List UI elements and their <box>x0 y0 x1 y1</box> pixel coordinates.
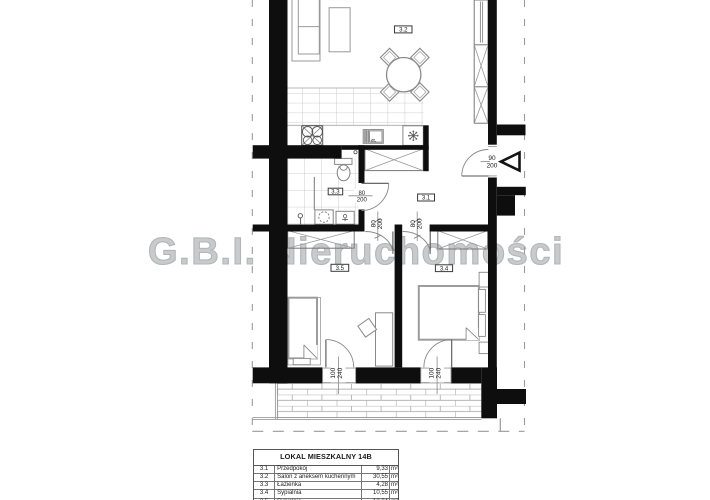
svg-text:3.5: 3.5 <box>336 266 345 272</box>
svg-text:3.2: 3.2 <box>399 28 408 34</box>
svg-text:90: 90 <box>488 155 496 162</box>
svg-text:200: 200 <box>377 218 384 229</box>
svg-text:200: 200 <box>357 197 368 203</box>
svg-text:80: 80 <box>358 191 365 197</box>
svg-text:200: 200 <box>417 218 424 229</box>
svg-text:100: 100 <box>429 367 436 378</box>
svg-text:3.4: 3.4 <box>440 266 449 272</box>
svg-text:100: 100 <box>330 367 337 378</box>
svg-text:240: 240 <box>337 367 344 378</box>
svg-text:3.1: 3.1 <box>422 196 431 202</box>
svg-text:240: 240 <box>436 367 443 378</box>
svg-text:200: 200 <box>487 162 498 169</box>
svg-text:3.3: 3.3 <box>331 190 340 196</box>
